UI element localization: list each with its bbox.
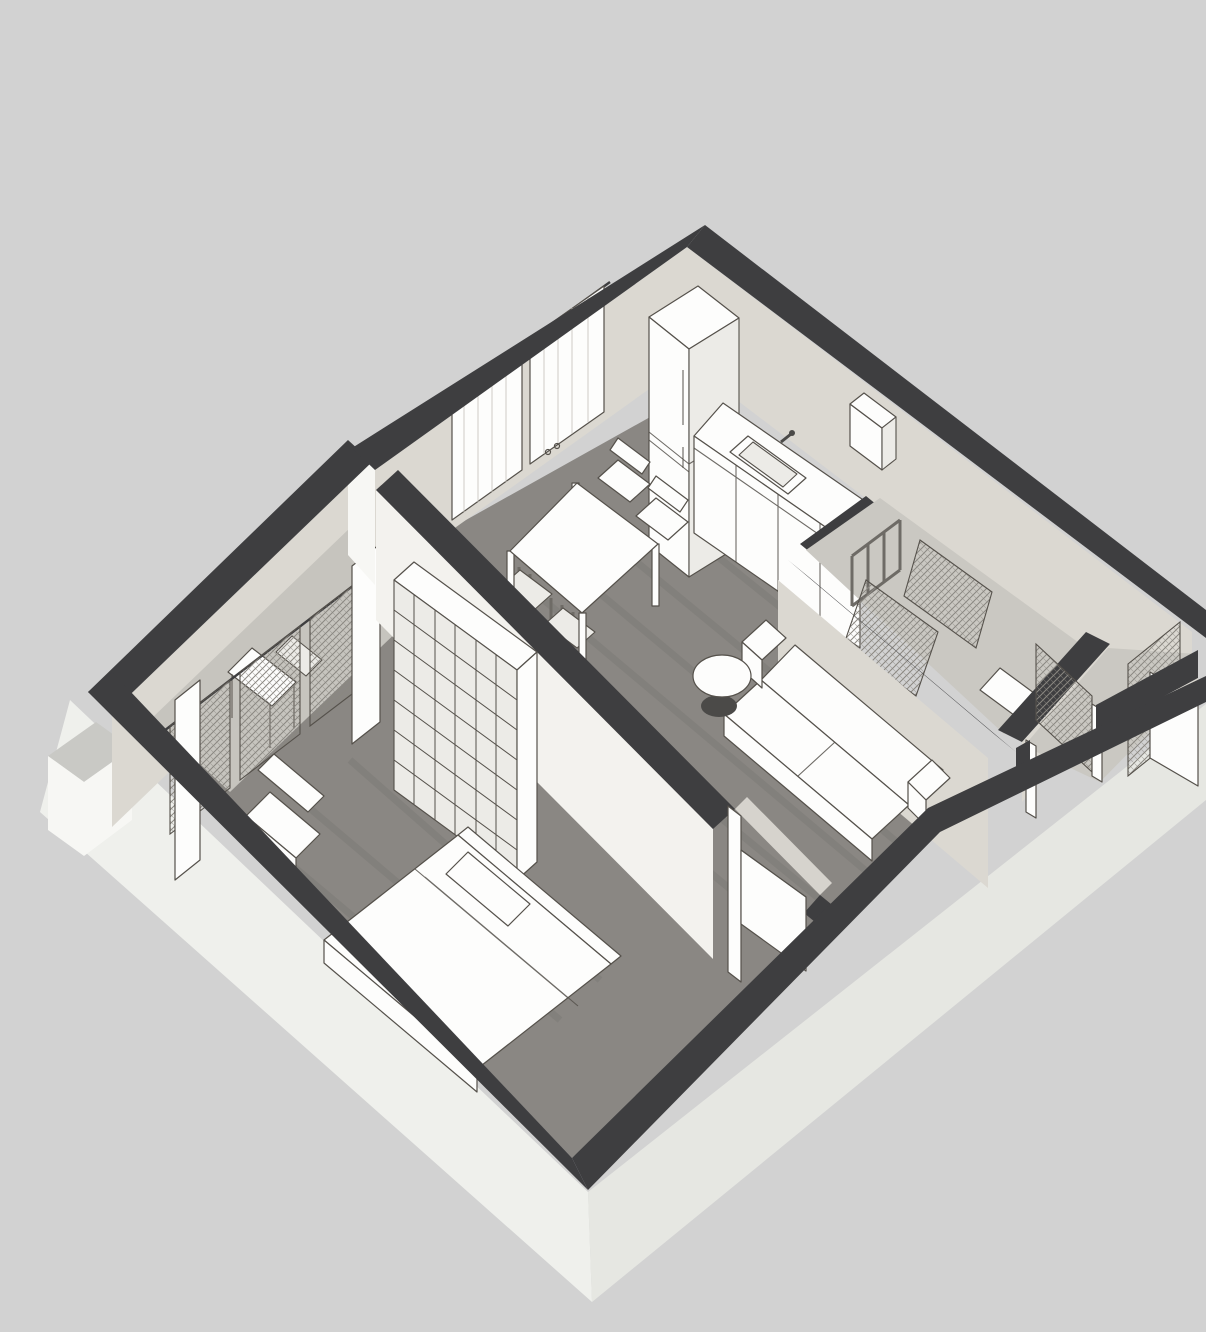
door-frame — [728, 806, 741, 982]
bookshelf-side — [517, 652, 537, 880]
floorplan-3d-render — [0, 0, 1206, 1332]
table-leg — [652, 544, 659, 606]
floorplan-canvas — [0, 0, 1206, 1332]
lamp-shade — [693, 655, 751, 697]
faucet-base — [789, 430, 795, 436]
